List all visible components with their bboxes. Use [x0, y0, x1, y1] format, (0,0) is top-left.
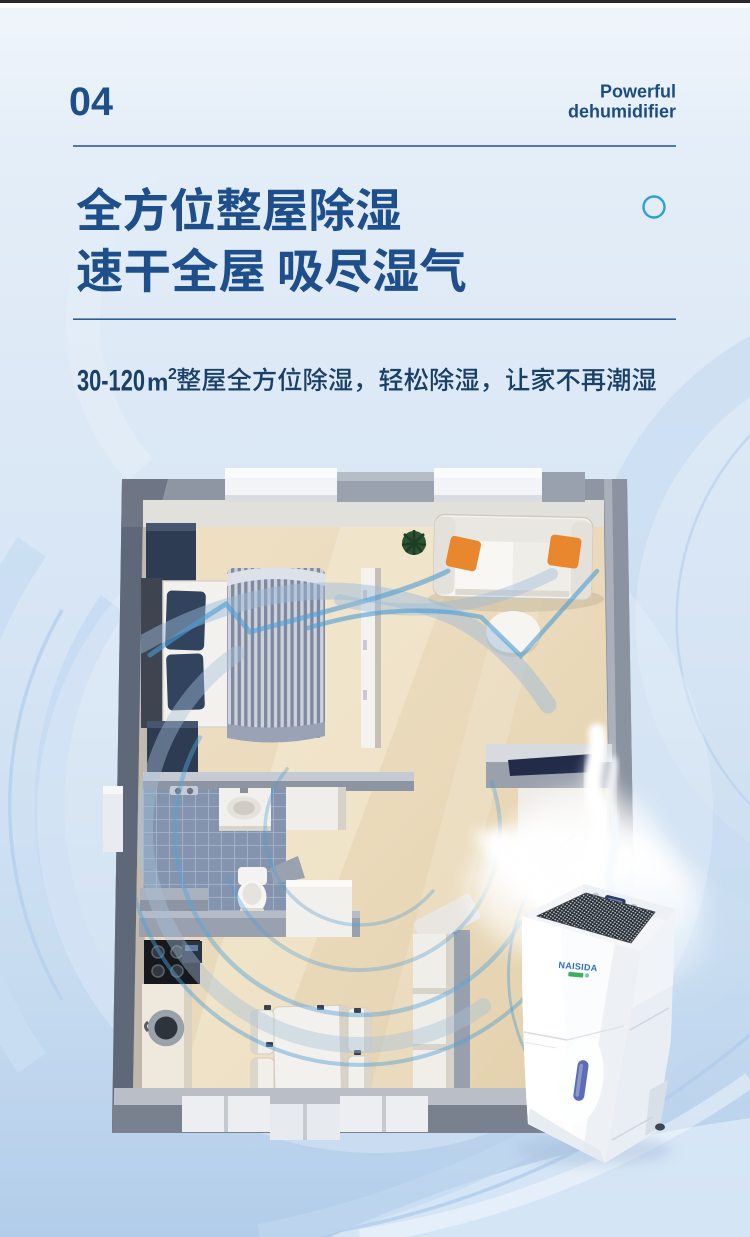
svg-text:m: m	[147, 370, 168, 397]
svg-text:04: 04	[69, 80, 113, 124]
svg-text:2: 2	[168, 366, 177, 383]
svg-text:dehumidifier: dehumidifier	[568, 102, 676, 122]
svg-text:Powerful: Powerful	[600, 82, 676, 102]
svg-text:30-120: 30-120	[77, 365, 145, 398]
